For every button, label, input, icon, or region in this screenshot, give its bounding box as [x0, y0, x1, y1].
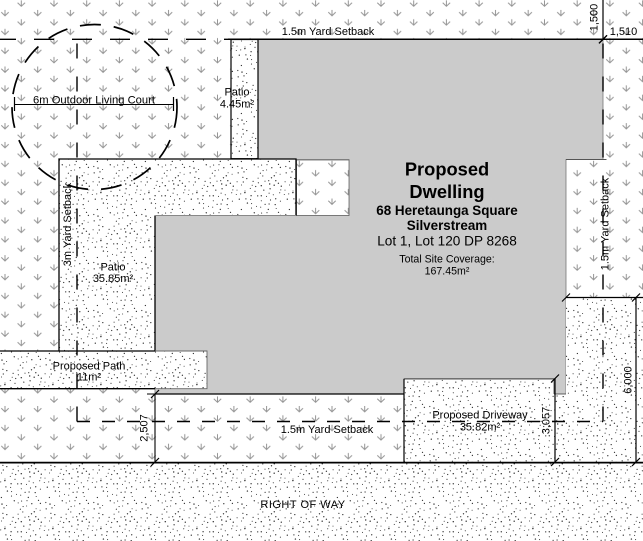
svg-text:RIGHT OF WAY: RIGHT OF WAY	[260, 499, 345, 511]
svg-text:35.85m²: 35.85m²	[93, 273, 134, 285]
svg-text:11m²: 11m²	[77, 372, 102, 384]
svg-text:167.45m²: 167.45m²	[425, 266, 470, 278]
svg-text:Patio: Patio	[224, 87, 249, 99]
svg-text:Lot 1, Lot 120 DP 8268: Lot 1, Lot 120 DP 8268	[377, 234, 517, 249]
svg-text:2,507: 2,507	[139, 414, 151, 442]
svg-text:3,057: 3,057	[541, 407, 553, 435]
svg-text:4.45m²: 4.45m²	[220, 99, 255, 111]
svg-text:Proposed Driveway: Proposed Driveway	[432, 410, 528, 422]
svg-text:1.5m Yard Setback: 1.5m Yard Setback	[282, 26, 375, 38]
svg-text:1.5m Yard Setback: 1.5m Yard Setback	[600, 177, 612, 270]
svg-text:1,510: 1,510	[610, 26, 638, 38]
svg-text:Proposed: Proposed	[405, 158, 489, 179]
svg-text:Patio: Patio	[100, 262, 125, 274]
svg-text:68 Heretaunga Square: 68 Heretaunga Square	[376, 203, 517, 218]
svg-text:1,500: 1,500	[589, 4, 601, 32]
svg-text:Dwelling: Dwelling	[409, 181, 484, 202]
svg-text:6,000: 6,000	[623, 366, 635, 394]
svg-text:3m Yard Setback: 3m Yard Setback	[62, 182, 74, 266]
svg-text:Total Site Coverage:: Total Site Coverage:	[399, 254, 494, 266]
svg-text:35.82m²: 35.82m²	[460, 422, 501, 434]
svg-text:6m Outdoor Living Court: 6m Outdoor Living Court	[33, 95, 156, 107]
svg-text:1.5m Yard Setback: 1.5m Yard Setback	[281, 424, 374, 436]
svg-text:Silverstream: Silverstream	[407, 218, 487, 233]
